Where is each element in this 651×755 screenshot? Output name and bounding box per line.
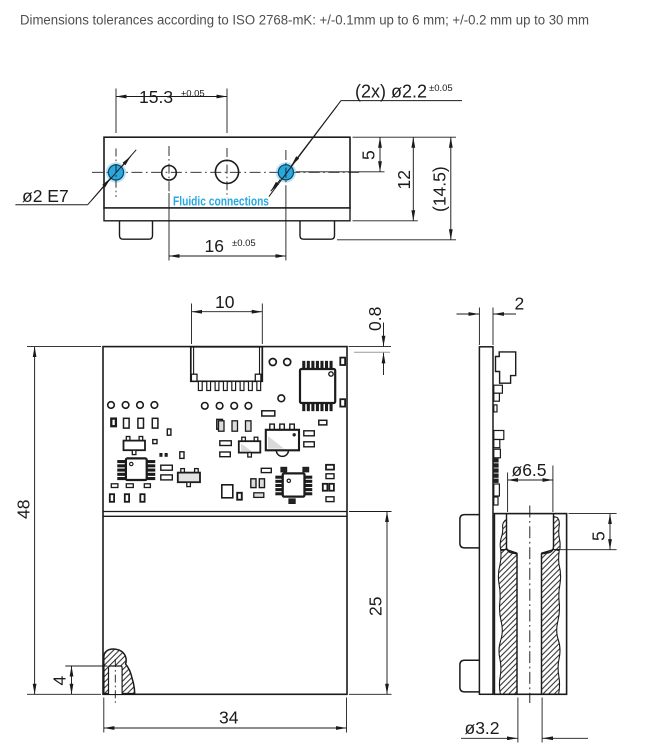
svg-text:10: 10 bbox=[215, 292, 235, 312]
svg-text:4: 4 bbox=[50, 676, 70, 686]
svg-text:48: 48 bbox=[14, 500, 34, 519]
svg-text:2: 2 bbox=[515, 294, 525, 314]
svg-text:12: 12 bbox=[394, 170, 414, 189]
svg-text:ø2 E7: ø2 E7 bbox=[22, 186, 69, 206]
svg-text:(14.5): (14.5) bbox=[430, 166, 450, 212]
svg-text:ø3.2: ø3.2 bbox=[465, 718, 500, 738]
svg-text:5: 5 bbox=[359, 150, 379, 160]
svg-text:5: 5 bbox=[589, 531, 609, 541]
svg-text:±0.05: ±0.05 bbox=[429, 83, 453, 94]
svg-text:16: 16 bbox=[205, 236, 224, 256]
svg-text:34: 34 bbox=[219, 708, 239, 728]
svg-text:0.8: 0.8 bbox=[365, 307, 385, 331]
svg-text:±0.05: ±0.05 bbox=[232, 238, 256, 249]
svg-text:Dimensions tolerances accordin: Dimensions tolerances according to ISO 2… bbox=[20, 13, 589, 28]
svg-text:15.3: 15.3 bbox=[139, 87, 173, 107]
svg-text:25: 25 bbox=[366, 597, 386, 616]
svg-text:ø6.5: ø6.5 bbox=[512, 460, 547, 480]
svg-text:Fluidic connections: Fluidic connections bbox=[173, 193, 269, 208]
svg-text:±0.05: ±0.05 bbox=[181, 89, 205, 100]
svg-text:(2x) ø2.2: (2x) ø2.2 bbox=[355, 82, 427, 102]
